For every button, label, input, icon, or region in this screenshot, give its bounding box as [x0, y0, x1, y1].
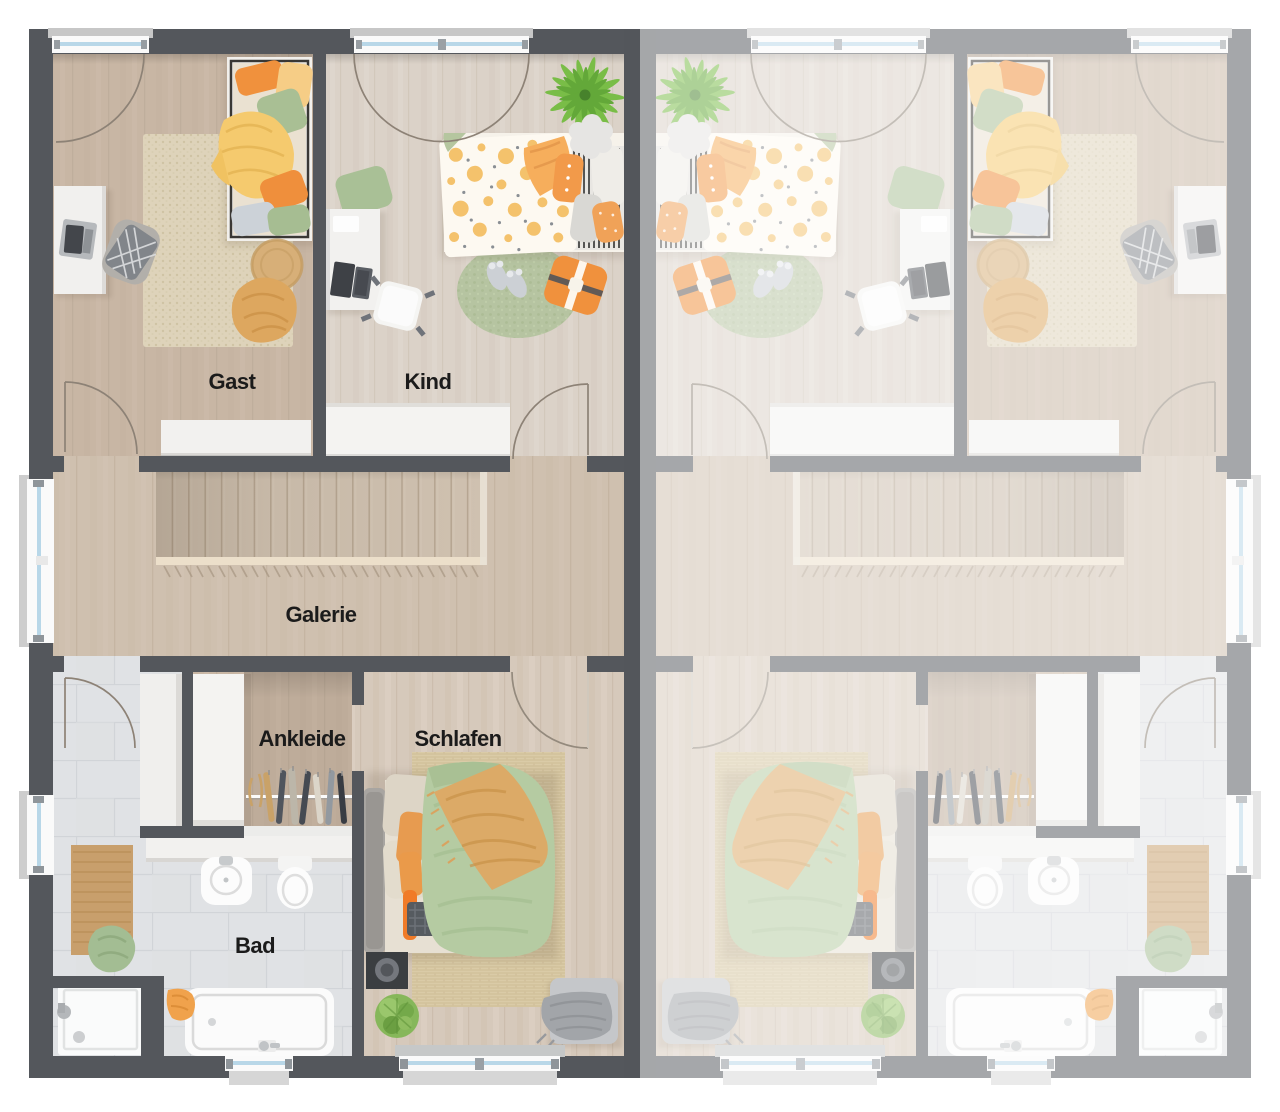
- svg-text:Kind: Kind: [405, 369, 452, 394]
- svg-text:Galerie: Galerie: [285, 602, 356, 627]
- svg-text:Gast: Gast: [209, 369, 257, 394]
- svg-text:Schlafen: Schlafen: [415, 726, 502, 751]
- svg-text:Bad: Bad: [235, 933, 275, 958]
- svg-text:Ankleide: Ankleide: [259, 726, 346, 751]
